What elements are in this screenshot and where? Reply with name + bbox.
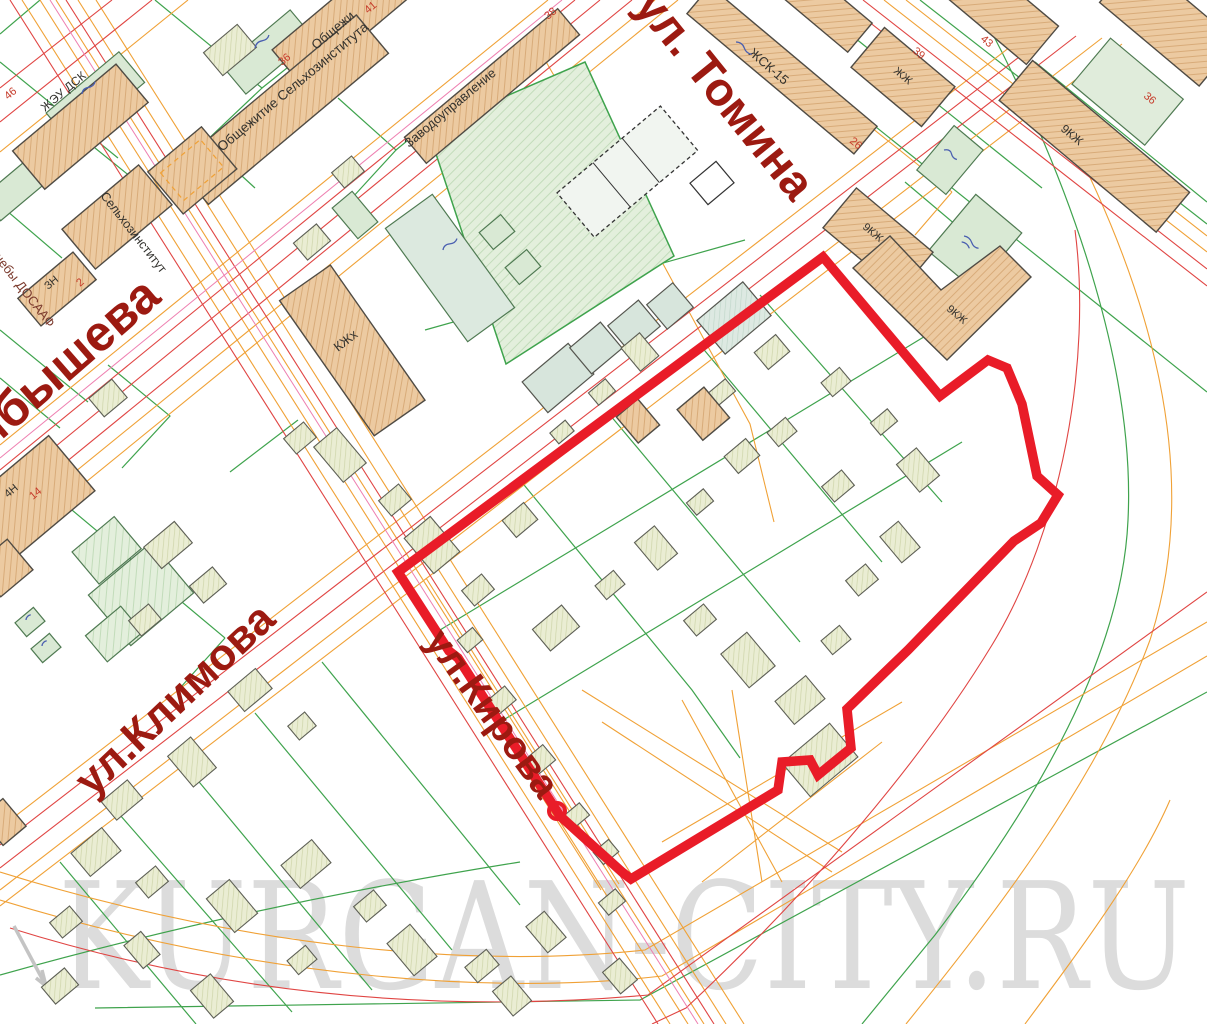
map-viewport: KURGAN-CITY.RU — [0, 0, 1207, 1024]
city-map-canvas[interactable]: KURGAN-CITY.RU — [0, 0, 1207, 1024]
